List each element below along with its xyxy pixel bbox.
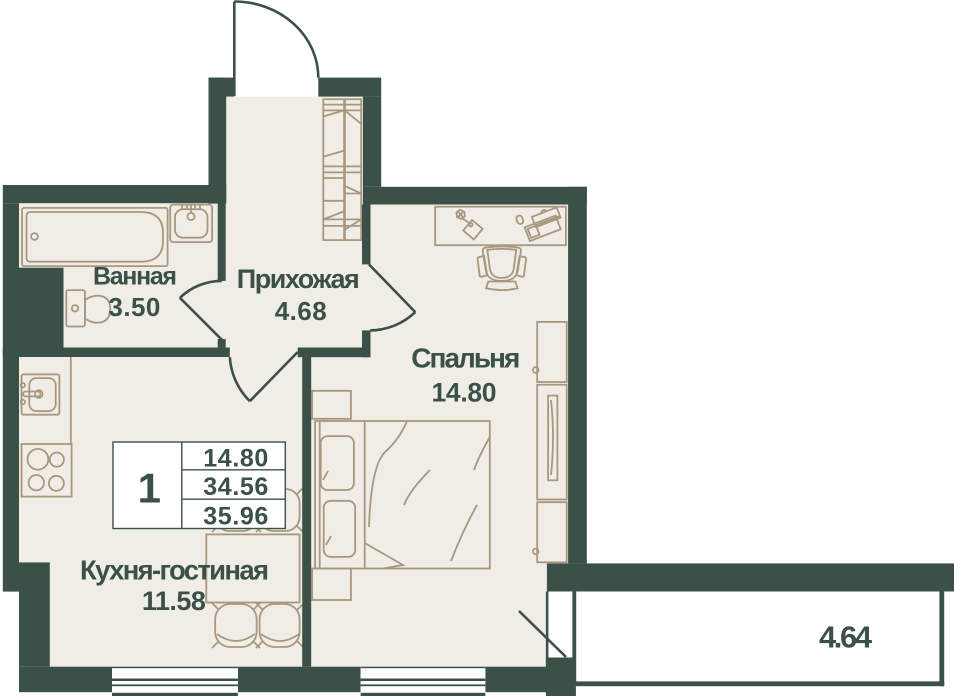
svg-text:11.58: 11.58 <box>142 586 206 616</box>
svg-text:4.68: 4.68 <box>275 296 327 326</box>
svg-text:35.96: 35.96 <box>203 502 268 530</box>
svg-text:Спальня: Спальня <box>411 343 520 374</box>
svg-text:14.80: 14.80 <box>432 378 497 408</box>
svg-text:Кухня-гостиная: Кухня-гостиная <box>80 555 269 586</box>
svg-text:3.50: 3.50 <box>108 292 160 322</box>
svg-text:34.56: 34.56 <box>203 473 268 501</box>
svg-text:Прихожая: Прихожая <box>237 264 360 294</box>
svg-text:Ванная: Ванная <box>93 263 177 291</box>
svg-text:14.80: 14.80 <box>203 445 268 473</box>
svg-text:1: 1 <box>138 464 161 511</box>
svg-text:4.64: 4.64 <box>819 620 873 655</box>
